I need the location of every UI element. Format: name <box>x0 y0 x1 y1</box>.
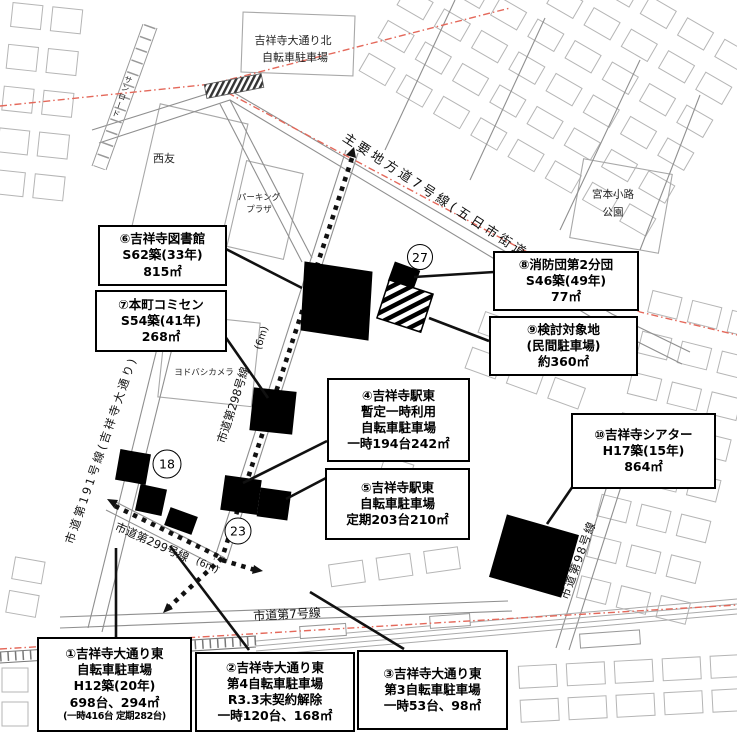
circled-number-18: 18 <box>153 450 182 479</box>
study-site-hatched-building <box>377 280 433 332</box>
callout-line: 698台、294㎡ <box>70 695 160 711</box>
callout-line: ⑩吉祥寺シアター <box>594 427 692 443</box>
callout-line: ⑦本町コミセン <box>118 297 204 313</box>
callout-line: ⑤吉祥寺駅東 <box>361 480 434 496</box>
station-east-temp-parking <box>221 476 261 515</box>
seiyu-label: 西友 <box>153 150 175 166</box>
parking-plaza-label-line2: プラザ <box>246 203 272 215</box>
callout-line: 864㎡ <box>624 459 663 475</box>
miyamoto-park-label-line1: 宮本小路 <box>592 187 634 202</box>
callout-line: (民間駐車場) <box>527 338 601 354</box>
north-parking-label-line1: 吉祥寺大通り北 <box>255 32 332 48</box>
community-center-building <box>250 388 296 434</box>
callout-line: 一時53台、98㎡ <box>384 698 481 714</box>
callout-line: 一時120台、168㎡ <box>218 708 333 724</box>
miyamoto-park-label-line2: 公園 <box>603 205 624 220</box>
callout-line: 815㎡ <box>143 264 182 280</box>
callout-line: R3.3末契約解除 <box>228 692 322 708</box>
callout-1-odori-east: ①吉祥寺大通り東 自転車駐車場 H12築(20年) 698台、294㎡ (一時4… <box>37 637 192 732</box>
callout-line: (一時416台 定期282台) <box>63 711 166 723</box>
callout-2-odori-east-no4: ②吉祥寺大通り東 第4自転車駐車場 R3.3末契約解除 一時120台、168㎡ <box>195 652 355 732</box>
callout-10-theatre: ⑩吉祥寺シアター H17築(15年) 864㎡ <box>571 413 716 489</box>
callout-line: 第4自転車駐車場 <box>227 676 323 692</box>
callout-4-station-east-temp: ④吉祥寺駅東 暫定一時利用 自転車駐車場 一時194台242㎡ <box>327 378 470 462</box>
callout-line: ①吉祥寺大通り東 <box>65 646 163 662</box>
callout-line: 約360㎡ <box>538 354 589 370</box>
callout-line: 一時194台242㎡ <box>347 436 449 452</box>
callout-line: S62築(33年) <box>122 247 202 263</box>
callout-line: ②吉祥寺大通り東 <box>226 660 324 676</box>
callout-line: ⑧消防団第2分団 <box>519 257 613 273</box>
callout-line: ④吉祥寺駅東 <box>362 388 435 404</box>
kichijoji-facility-map: 吉祥寺大通り北 自転車駐車場 西友 パーキング プラザ 宮本小路 公園 ヨドバシ… <box>0 0 737 737</box>
odori-parking-2 <box>136 485 167 516</box>
odori-parking-3 <box>165 508 197 534</box>
library-building <box>301 262 372 340</box>
callout-line: 暫定一時利用 <box>361 404 436 420</box>
north-parking-label-line2: 自転車駐車場 <box>262 49 328 65</box>
circled-number-27: 27 <box>407 244 433 270</box>
callout-8-fire-brigade: ⑧消防団第2分団 S46築(49年) 77㎡ <box>493 251 639 311</box>
station-marker <box>204 74 264 99</box>
callout-line: 自転車駐車場 <box>361 420 436 436</box>
circled-number-23: 23 <box>225 518 252 545</box>
callout-line: ③吉祥寺大通り東 <box>383 666 481 682</box>
callout-line: H12築(20年) <box>74 678 156 694</box>
callout-3-odori-east-no3: ③吉祥寺大通り東 第3自転車駐車場 一時53台、98㎡ <box>357 650 508 730</box>
callout-line: 自転車駐車場 <box>360 496 435 512</box>
callout-5-station-east: ⑤吉祥寺駅東 自転車駐車場 定期203台210㎡ <box>325 468 470 540</box>
callout-line: 自転車駐車場 <box>77 662 152 678</box>
callout-line: S54築(41年) <box>121 313 201 329</box>
callout-line: ⑨検討対象地 <box>527 322 600 338</box>
odori-parking-1 <box>116 450 151 485</box>
callout-line: 定期203台210㎡ <box>346 512 448 528</box>
parking-plaza-label-line1: パーキング <box>238 191 280 203</box>
callout-line: ⑥吉祥寺図書館 <box>120 231 206 247</box>
yodobashi-label: ヨドバシカメラ <box>174 366 234 378</box>
callout-line: 77㎡ <box>551 289 581 305</box>
callout-line: 268㎡ <box>142 329 181 345</box>
callout-7-community-center: ⑦本町コミセン S54築(41年) 268㎡ <box>95 290 227 352</box>
road-7-label: 市道第7号線 <box>253 604 321 625</box>
callout-6-library: ⑥吉祥寺図書館 S62築(33年) 815㎡ <box>98 225 227 286</box>
callout-line: S46築(49年) <box>526 273 606 289</box>
station-east-parking <box>257 488 291 520</box>
callout-line: 第3自転車駐車場 <box>384 682 480 698</box>
callout-line: H17築(15年) <box>603 443 685 459</box>
callout-9-study-site: ⑨検討対象地 (民間駐車場) 約360㎡ <box>489 316 638 376</box>
